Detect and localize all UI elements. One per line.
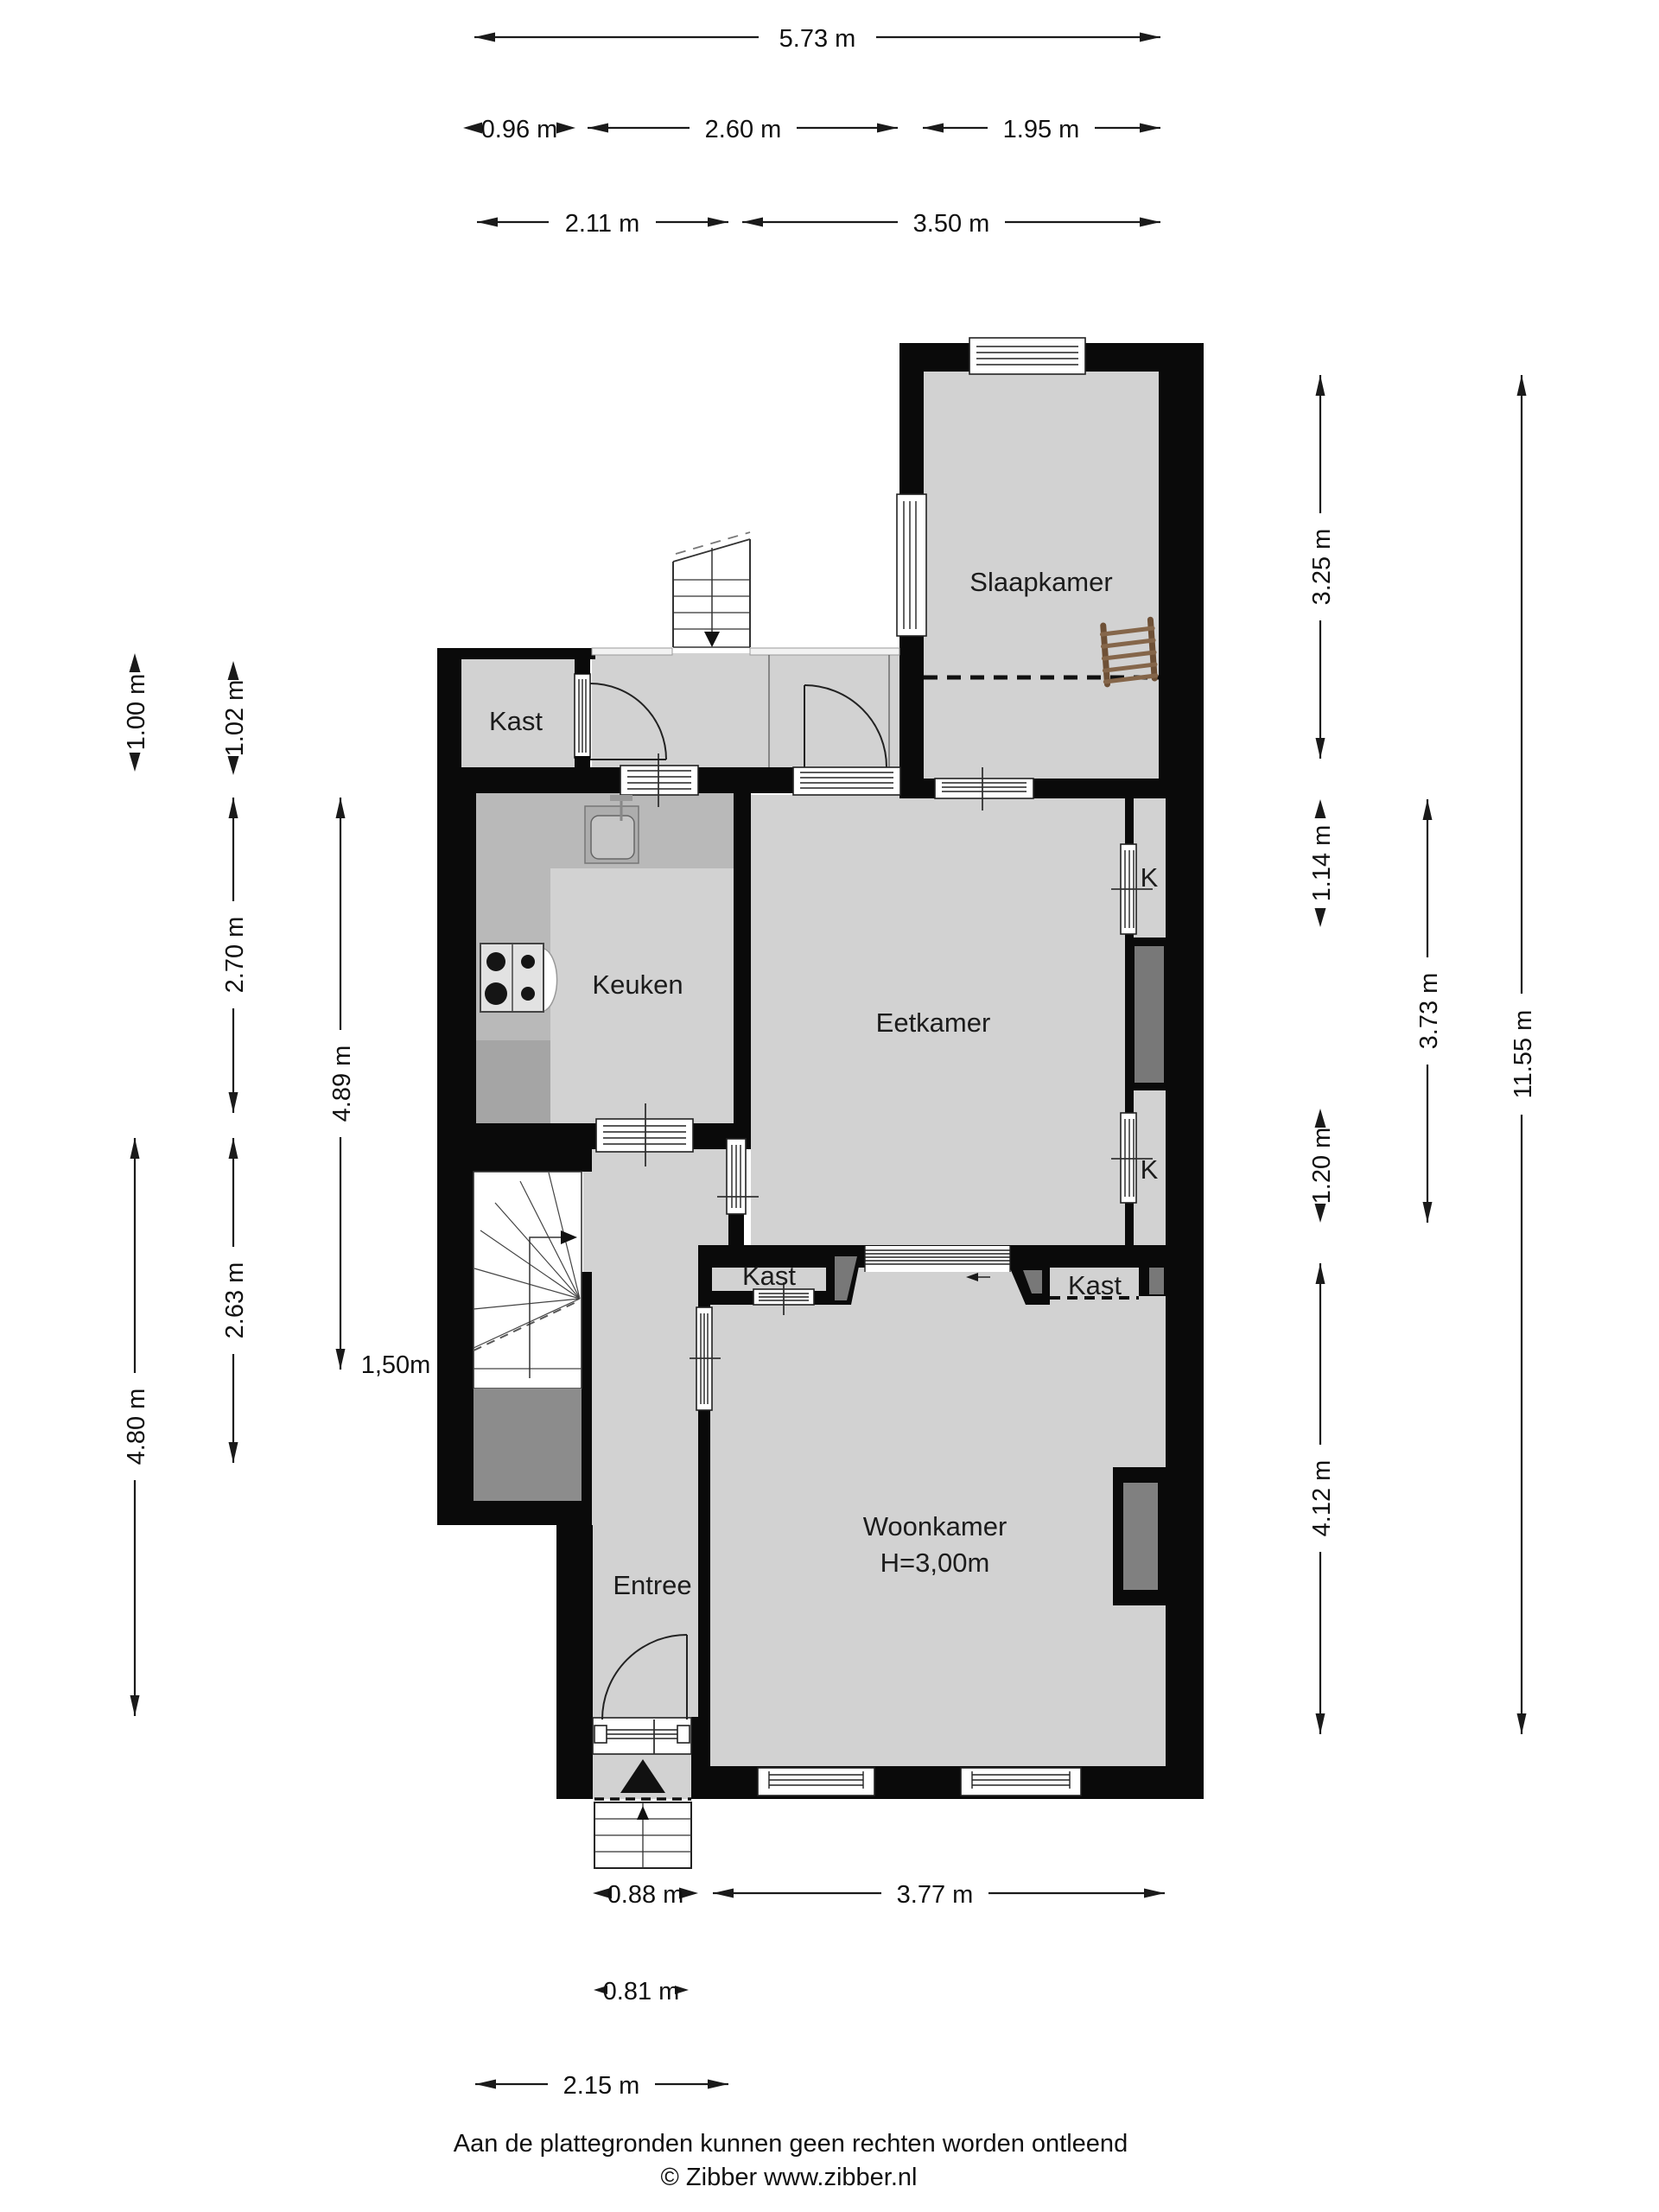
svg-text:4.12 m: 4.12 m (1308, 1460, 1336, 1537)
svg-text:Kast: Kast (742, 1261, 796, 1291)
svg-text:2.70 m: 2.70 m (221, 917, 249, 994)
svg-text:0.88 m: 0.88 m (607, 1881, 684, 1909)
svg-text:Woonkamer: Woonkamer (863, 1511, 1007, 1541)
svg-text:1,50m: 1,50m (361, 1351, 431, 1379)
svg-text:Kast: Kast (489, 706, 543, 736)
svg-text:11.55 m: 11.55 m (1510, 1010, 1537, 1099)
svg-text:Slaapkamer: Slaapkamer (969, 567, 1112, 597)
svg-text:Eetkamer: Eetkamer (876, 1007, 991, 1038)
svg-text:3.77 m: 3.77 m (897, 1881, 974, 1909)
svg-text:1.02 m: 1.02 m (221, 680, 249, 757)
svg-text:1.00 m: 1.00 m (123, 674, 150, 751)
svg-text:4.80 m: 4.80 m (123, 1389, 150, 1465)
svg-text:2.63 m: 2.63 m (221, 1262, 249, 1339)
svg-text:2.15 m: 2.15 m (563, 2072, 640, 2100)
svg-text:K: K (1141, 862, 1159, 893)
svg-text:0.96 m: 0.96 m (481, 116, 558, 143)
svg-text:Entree: Entree (613, 1570, 691, 1600)
svg-text:4.89 m: 4.89 m (328, 1046, 356, 1122)
svg-text:K: K (1141, 1154, 1159, 1185)
svg-text:0.81 m: 0.81 m (603, 1978, 680, 2005)
svg-text:3.25 m: 3.25 m (1308, 529, 1336, 606)
svg-text:2.11 m: 2.11 m (565, 210, 640, 238)
svg-text:1.14 m: 1.14 m (1308, 825, 1336, 902)
svg-text:Aan de plattegronden kunnen ge: Aan de plattegronden kunnen geen rechten… (454, 2130, 1128, 2158)
svg-text:2.60 m: 2.60 m (705, 116, 782, 143)
svg-text:5.73 m: 5.73 m (779, 25, 856, 53)
svg-text:1.95 m: 1.95 m (1003, 116, 1080, 143)
svg-text:H=3,00m: H=3,00m (880, 1548, 990, 1578)
svg-text:3.73 m: 3.73 m (1415, 973, 1443, 1050)
svg-text:3.50 m: 3.50 m (913, 210, 990, 238)
svg-text:Keuken: Keuken (592, 969, 683, 1000)
svg-text:1.20 m: 1.20 m (1308, 1128, 1336, 1205)
svg-text:© Zibber www.zibber.nl: © Zibber www.zibber.nl (661, 2164, 918, 2191)
svg-text:Kast: Kast (1068, 1270, 1122, 1300)
